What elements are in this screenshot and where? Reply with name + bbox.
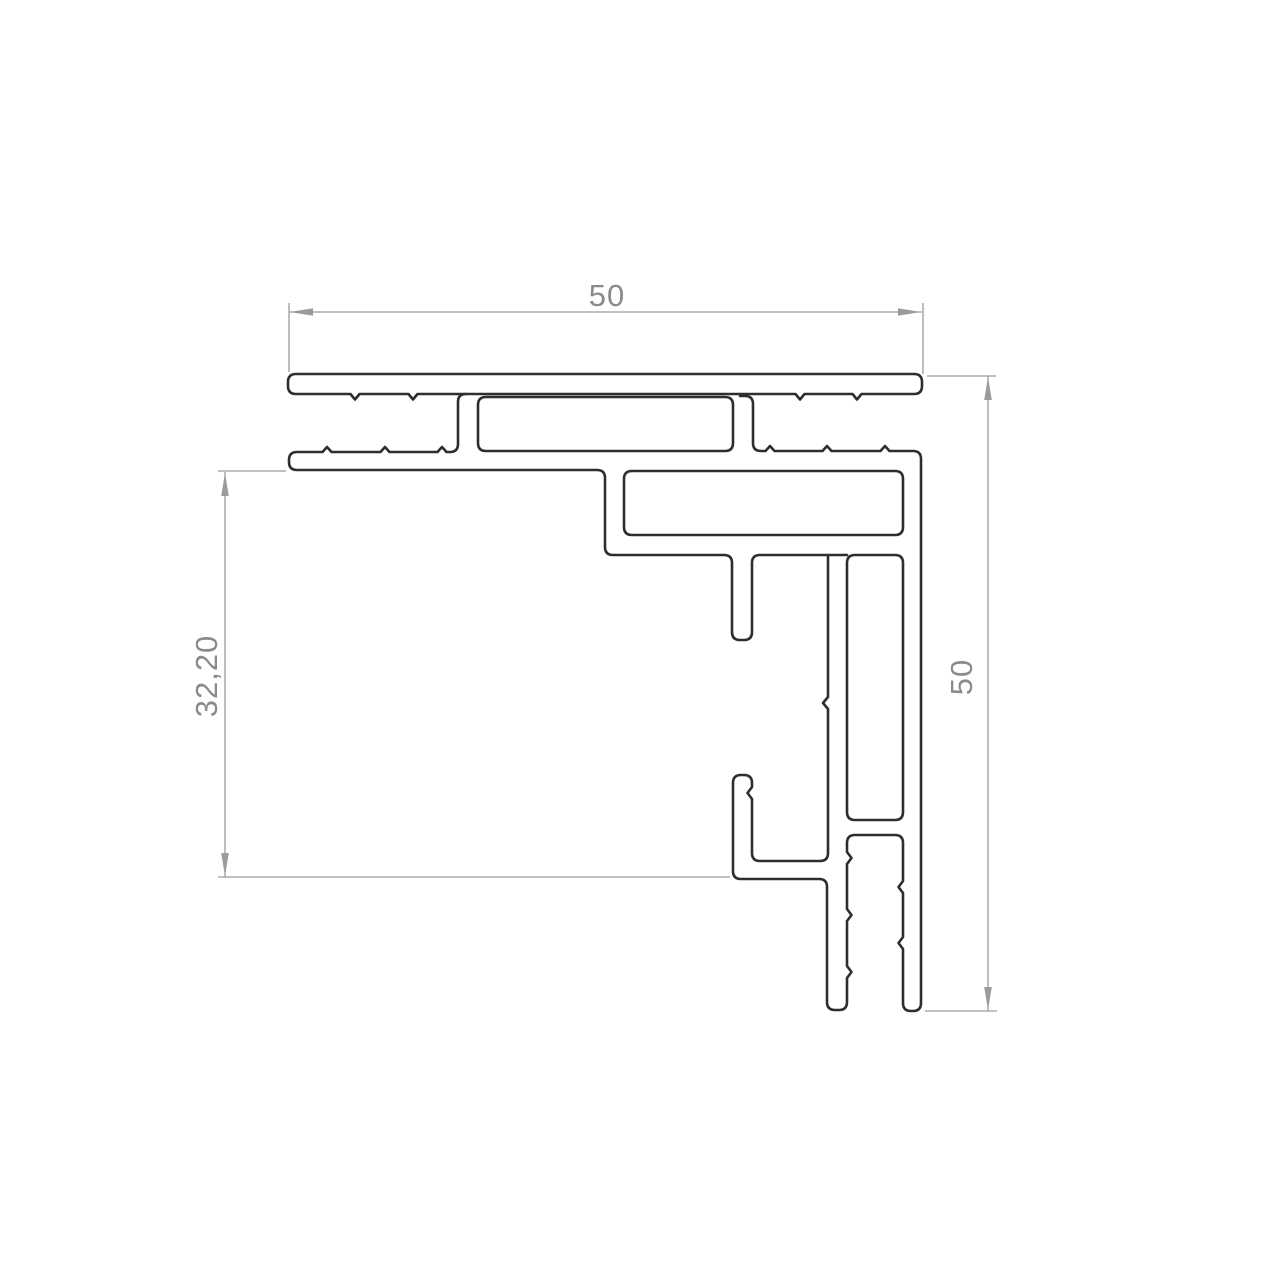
second-plate-outline: [289, 394, 847, 640]
arrow-top-left: [290, 308, 313, 316]
upper-chamber: [478, 397, 733, 451]
arrow-left-down: [221, 853, 229, 876]
profile-geometry: [288, 374, 922, 1011]
vertical-arm-outline: [733, 396, 921, 1011]
dimension-annotations: 50 50 32,20: [189, 278, 997, 1011]
dim-label-top-width: 50: [589, 278, 625, 313]
arrow-top-right: [898, 308, 921, 316]
corner-chamber: [624, 471, 903, 535]
top-plate-outline: [288, 374, 922, 400]
arrow-left-up: [221, 473, 229, 496]
dim-label-left-height: 32,20: [189, 635, 224, 718]
drawing-canvas: 50 50 32,20: [0, 0, 1276, 1280]
arrow-right-down: [984, 987, 992, 1010]
vertical-chamber: [847, 555, 903, 820]
dim-label-right-height: 50: [944, 659, 979, 695]
profile-drawing: 50 50 32,20: [0, 0, 1276, 1280]
arrow-right-up: [984, 377, 992, 400]
